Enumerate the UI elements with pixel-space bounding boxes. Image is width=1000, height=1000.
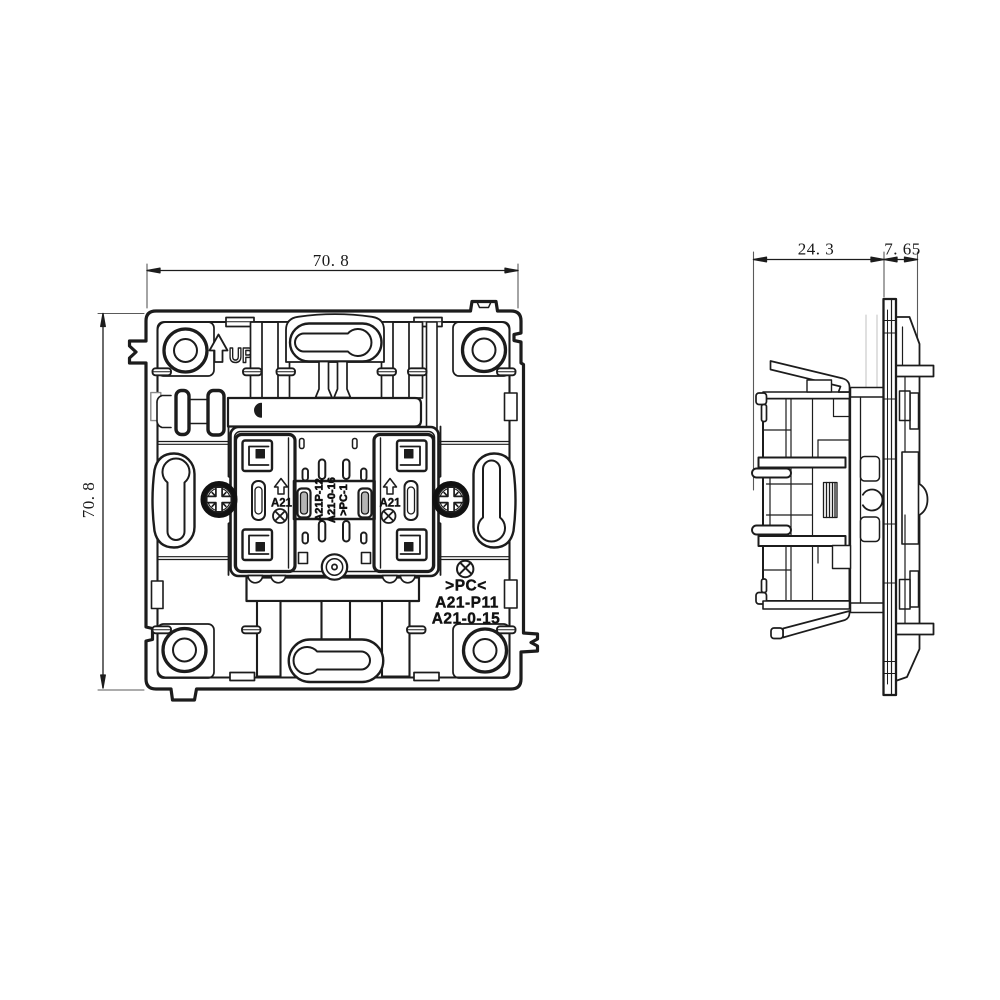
svg-text:>PC-1: >PC-1 xyxy=(338,484,350,516)
svg-text:7. 65: 7. 65 xyxy=(884,240,921,259)
svg-text:70. 8: 70. 8 xyxy=(313,251,350,270)
svg-text:A21P-12: A21P-12 xyxy=(314,478,326,521)
svg-text:70. 8: 70. 8 xyxy=(79,482,98,519)
svg-text:A21-0-16: A21-0-16 xyxy=(326,477,338,523)
svg-text:24. 3: 24. 3 xyxy=(798,240,835,259)
svg-text:A21: A21 xyxy=(379,498,401,510)
svg-text:>PC<: >PC< xyxy=(445,578,487,595)
svg-text:A21-0-15: A21-0-15 xyxy=(432,611,501,628)
svg-text:A21-P11: A21-P11 xyxy=(435,595,499,612)
svg-text:A21: A21 xyxy=(271,498,293,510)
